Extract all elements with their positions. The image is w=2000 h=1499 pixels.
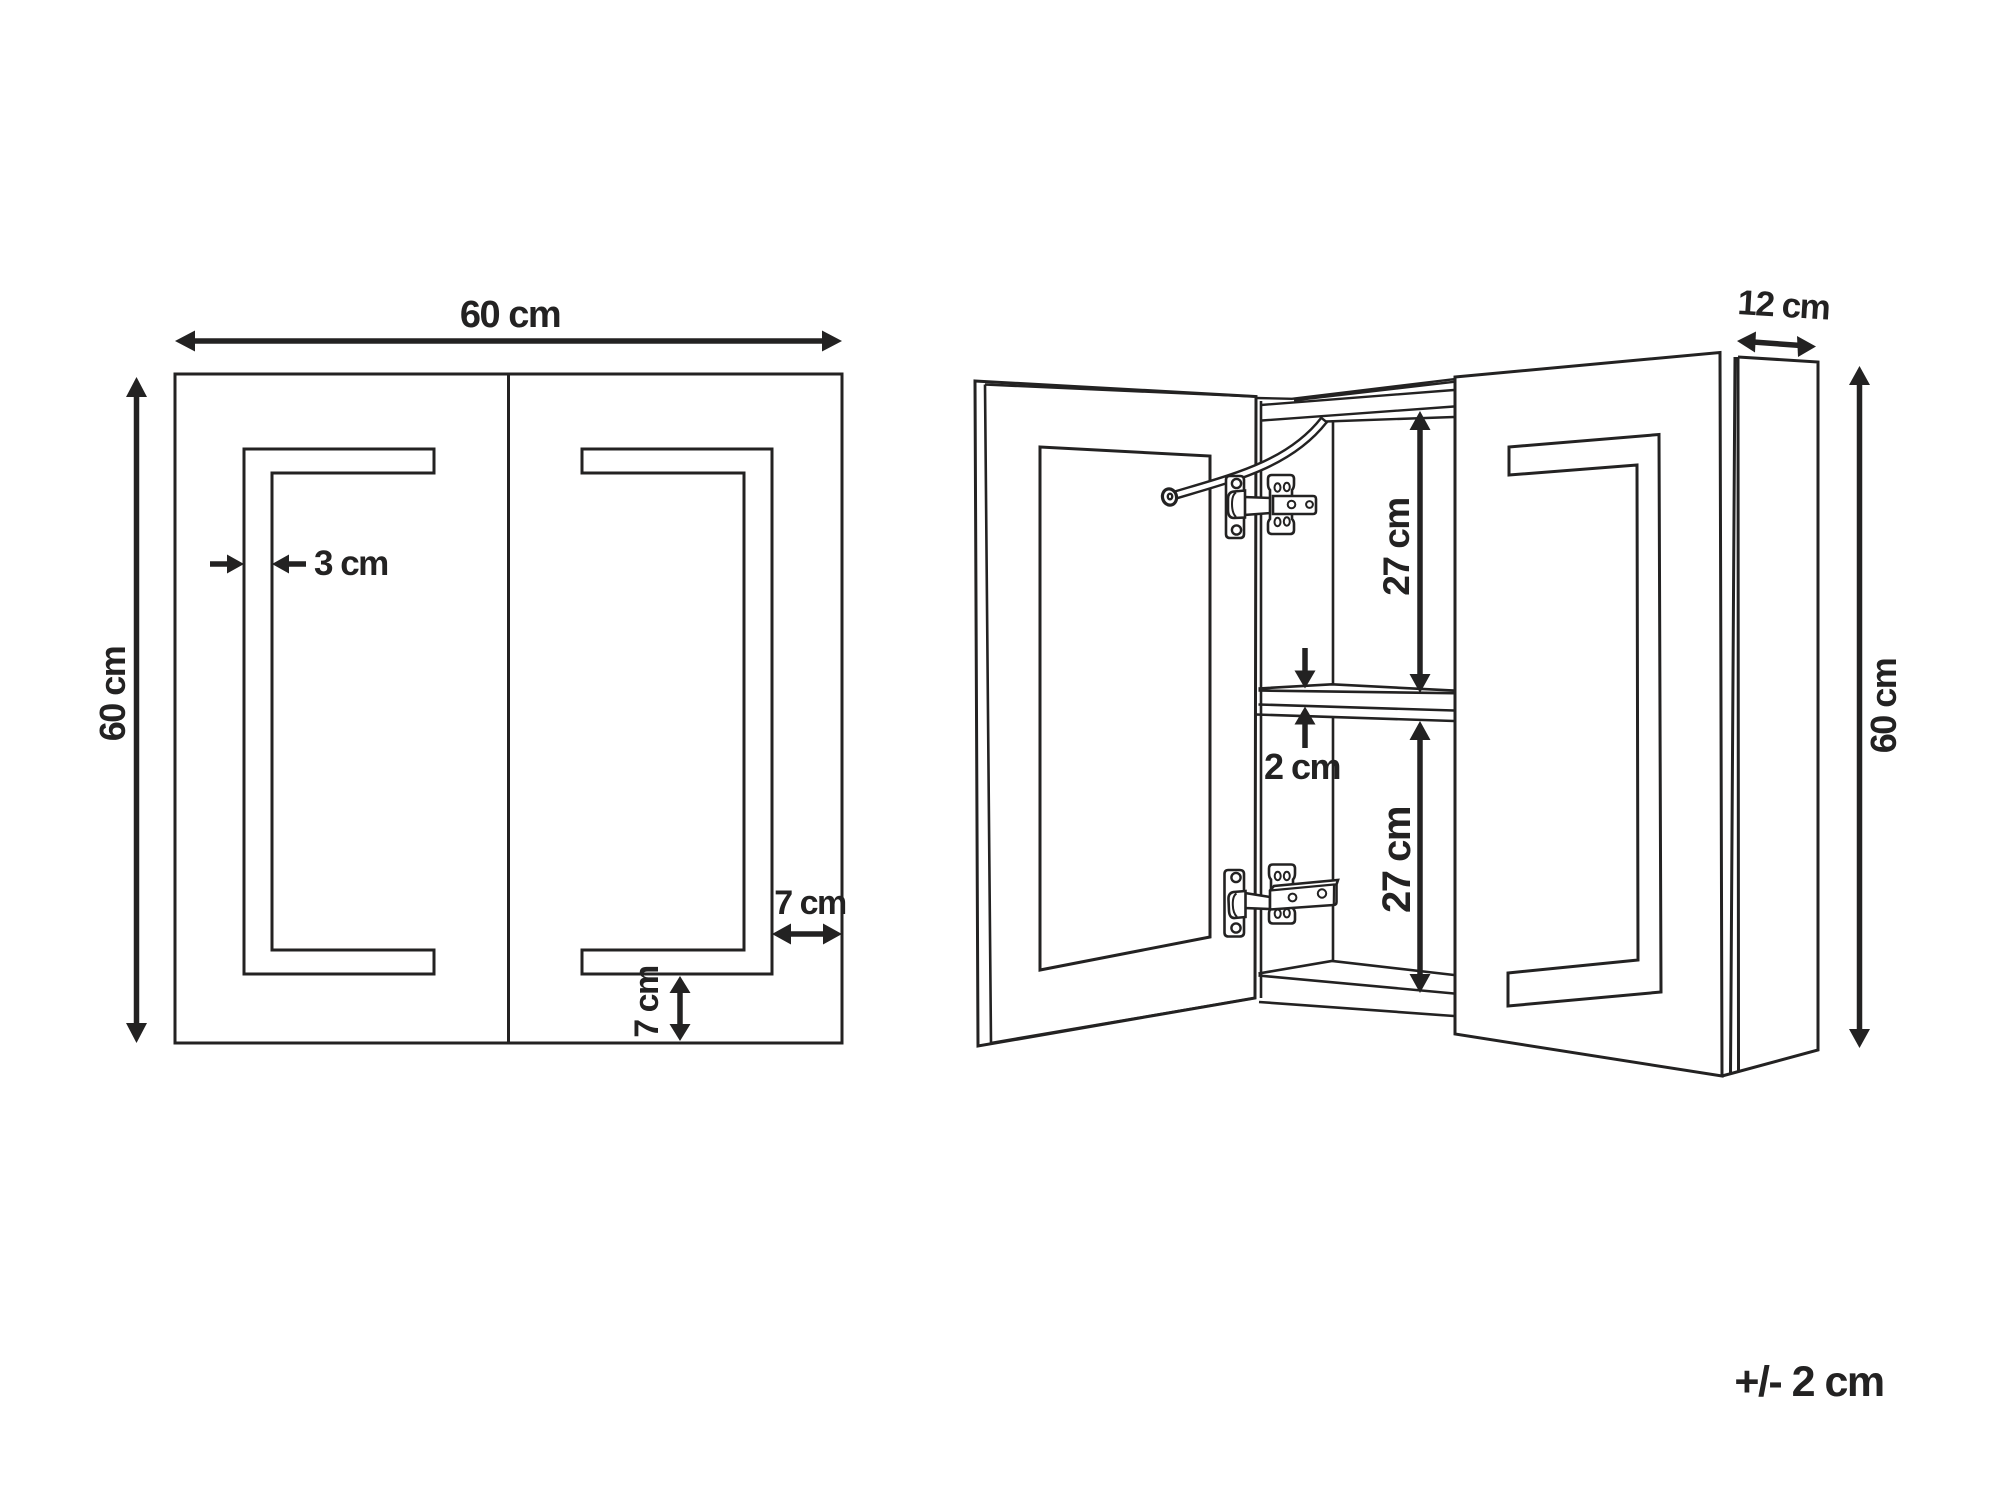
svg-text:3 cm: 3 cm xyxy=(314,544,388,583)
svg-text:2 cm: 2 cm xyxy=(1264,746,1340,787)
svg-text:27 cm: 27 cm xyxy=(1376,498,1417,595)
svg-text:7 cm: 7 cm xyxy=(774,884,846,922)
svg-text:60 cm: 60 cm xyxy=(460,294,560,336)
svg-text:+/- 2 cm: +/- 2 cm xyxy=(1734,1358,1883,1406)
svg-text:60 cm: 60 cm xyxy=(92,647,133,742)
svg-text:12 cm: 12 cm xyxy=(1737,283,1831,328)
svg-text:60 cm: 60 cm xyxy=(1863,659,1904,754)
svg-text:27 cm: 27 cm xyxy=(1375,807,1419,913)
svg-text:7 cm: 7 cm xyxy=(628,966,666,1038)
